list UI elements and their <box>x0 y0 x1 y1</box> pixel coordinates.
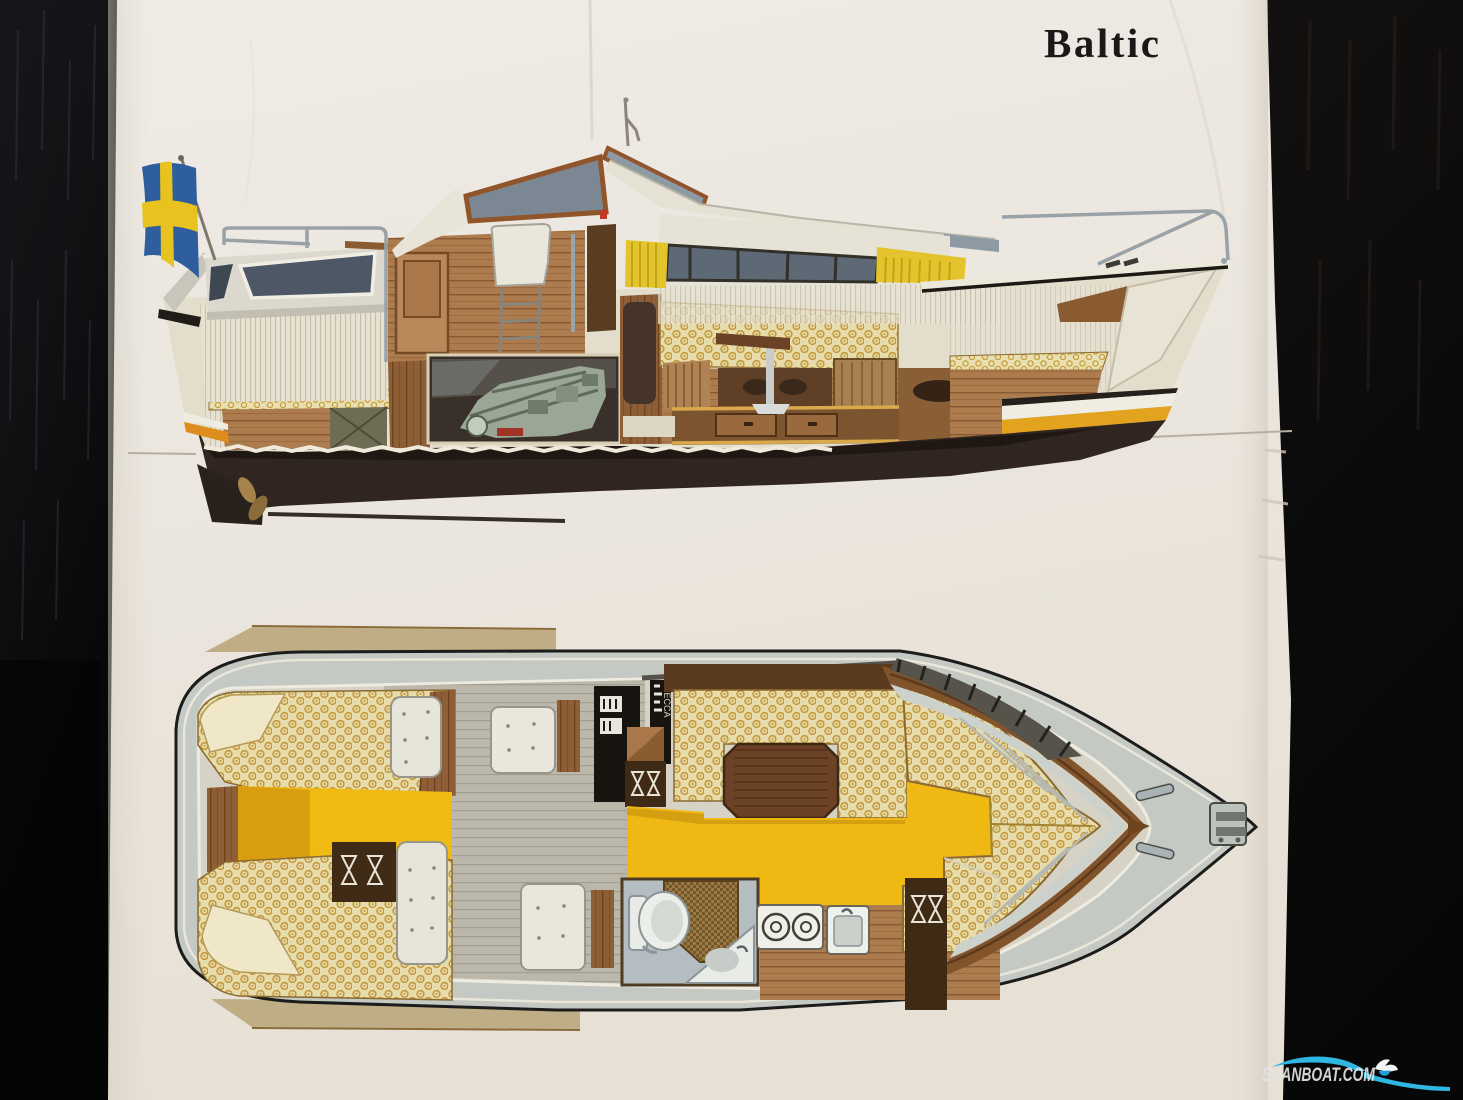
svg-text:SCANBOAT.COM: SCANBOAT.COM <box>1262 1065 1376 1086</box>
svg-text:Baltic: Baltic <box>1044 20 1159 66</box>
